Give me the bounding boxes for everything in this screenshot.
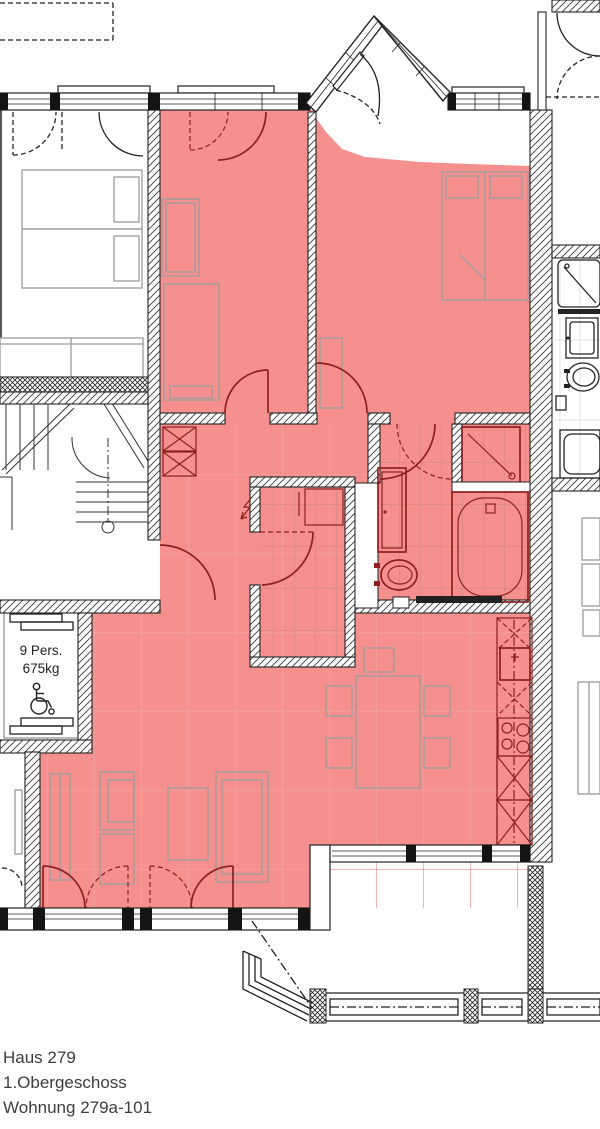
wall-storage-top <box>250 477 355 487</box>
neighbor-lower-left <box>2 790 22 888</box>
railing-corner <box>249 953 309 1015</box>
wall-bath-top <box>368 413 390 424</box>
elevator-capacity-label: 675kg <box>23 661 60 676</box>
stair-wall-edge <box>0 477 12 530</box>
window-post <box>482 845 492 862</box>
divider <box>558 309 600 314</box>
window-ledge <box>178 86 274 93</box>
railing-corner <box>243 951 307 1021</box>
kitchen-unit <box>582 564 600 606</box>
pillow <box>114 236 139 281</box>
furniture-strip <box>15 790 22 854</box>
window-band-top-right <box>448 93 530 110</box>
window-post <box>298 908 310 930</box>
stairwell <box>0 400 148 533</box>
kitchen-unit <box>583 610 600 636</box>
door-swing-dashed <box>557 56 600 99</box>
railing-cap <box>243 951 261 959</box>
wall-box <box>556 396 566 410</box>
neighbor-bath-tiles <box>552 258 600 478</box>
wall-top-right <box>552 0 600 12</box>
window-ledge <box>58 86 150 93</box>
door-swing-dashed <box>2 868 22 888</box>
toilet-mark <box>564 369 570 373</box>
window-door-swing-dashed <box>13 112 56 155</box>
toilet <box>567 363 599 391</box>
railing-post <box>310 989 326 1023</box>
wall-hall-top <box>160 413 225 424</box>
title-block: Haus 279 1.Obergeschoss Wohnung 279a-101 <box>3 1048 152 1117</box>
balcony-pier <box>528 866 543 989</box>
sink-cabinet <box>566 318 598 358</box>
door-stop <box>393 597 409 608</box>
vanity-handle <box>383 510 386 513</box>
sink-inner <box>570 322 594 354</box>
bed-left <box>22 170 142 229</box>
shelf-ledge <box>452 482 530 492</box>
radiator <box>416 596 502 603</box>
top-windows <box>0 86 530 110</box>
bay-glazing <box>378 21 446 96</box>
neighbor-bedroom <box>0 3 143 377</box>
toilet-mark <box>564 384 570 388</box>
window-post <box>0 93 8 110</box>
wall-crosshatch-band <box>0 377 160 392</box>
wall <box>0 392 148 404</box>
window-post <box>406 845 416 862</box>
corner-pier <box>310 845 330 930</box>
window-post <box>122 908 134 930</box>
handle <box>567 337 570 340</box>
window-door-swing <box>99 112 143 156</box>
window-post <box>140 908 152 930</box>
bathtub-inner <box>564 434 600 474</box>
bay-window <box>306 16 450 124</box>
door-swing <box>557 13 600 56</box>
elevator-persons-label: 9 Pers. <box>20 643 63 658</box>
railing-post <box>528 989 543 1023</box>
wall-storage-right <box>345 487 355 657</box>
wall-apartment-left <box>148 110 160 540</box>
window-band-right <box>330 845 530 862</box>
stair-stringer <box>104 404 144 468</box>
toilet-inner <box>573 368 595 386</box>
window-post <box>33 908 45 930</box>
floor-plan-page: 9 Pers. 675kg <box>0 0 600 1129</box>
bay-glazing <box>311 21 378 107</box>
window-post <box>448 93 456 110</box>
toilet-tank-mark <box>374 581 380 586</box>
house-label: Haus 279 <box>3 1048 76 1067</box>
window-post <box>520 845 530 862</box>
stair-stringer <box>6 408 74 474</box>
stair-walkline-start <box>102 521 114 533</box>
elevator: 9 Pers. 675kg <box>4 613 78 738</box>
wall-storage-bottom <box>250 657 355 667</box>
toilet-tank-mark <box>374 563 380 568</box>
wall-neighbor-bath-top <box>552 245 600 258</box>
apartment-label: Wohnung 279a-101 <box>3 1098 152 1117</box>
wall-neighbor-bath-bottom <box>552 478 600 491</box>
window-post <box>0 908 8 930</box>
balcony-above-dashed-outline <box>0 3 113 40</box>
stair-stringer <box>2 404 70 470</box>
bay-door-swing <box>360 54 380 116</box>
bed-right <box>22 229 142 288</box>
wall-elevator-right <box>78 613 92 740</box>
railing-corner <box>255 956 311 1009</box>
stair-landing-curve <box>72 437 110 478</box>
kitchen-unit <box>582 518 600 560</box>
wall-left-lower <box>25 752 40 908</box>
wall-exterior-right <box>530 110 552 862</box>
installation-shaft <box>355 483 378 608</box>
bay-door-swing-dashed <box>336 90 380 124</box>
window-post <box>148 93 160 110</box>
window-post <box>228 908 242 930</box>
floor-plan-svg: 9 Pers. 675kg <box>0 0 600 1129</box>
apartment-highlight <box>40 110 530 908</box>
window-post <box>50 93 60 110</box>
wall-shower-stub <box>452 424 462 482</box>
wall-storage-left <box>250 487 260 532</box>
floor-label: 1.Obergeschoss <box>3 1073 127 1092</box>
wall-bath-top <box>455 413 530 424</box>
window-post <box>522 93 530 110</box>
wall-between-bedrooms <box>308 112 316 413</box>
wall-elevator-top <box>0 600 160 613</box>
corridor-wall <box>538 12 546 110</box>
wall-elevator-bottom <box>0 740 92 753</box>
wall-hall-top <box>270 413 317 424</box>
pillow <box>114 177 139 222</box>
highlight-bedroom-1 <box>160 110 316 424</box>
railing-post <box>464 989 478 1023</box>
highlight-bedroom-2 <box>316 118 530 424</box>
storage-floor-tiles <box>260 487 345 657</box>
wall-storage-left <box>250 585 260 657</box>
shower-drain <box>565 264 569 268</box>
stair-stringer <box>110 400 148 461</box>
